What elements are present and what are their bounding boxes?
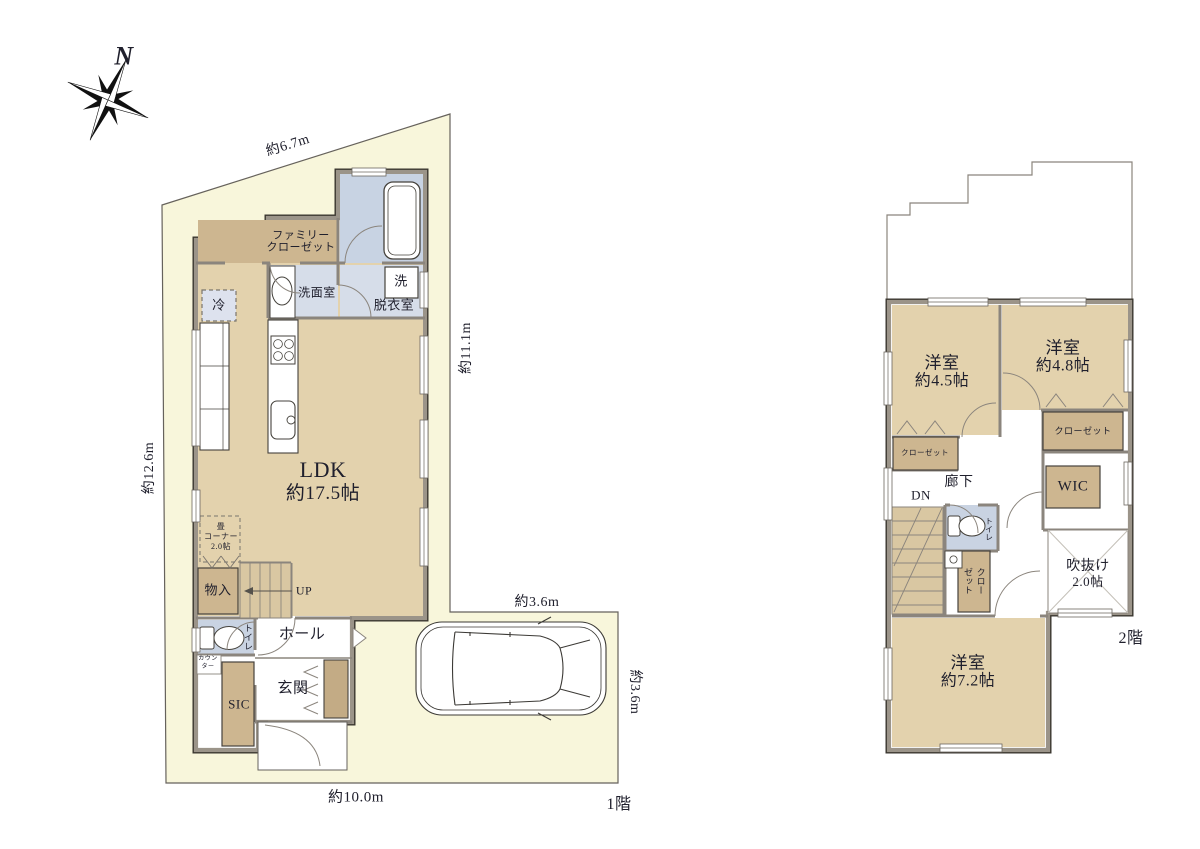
room-label-72: 洋室 約7.2帖 (941, 654, 996, 691)
hallway-label: 廊下 (945, 475, 974, 491)
dim-bottom: 約10.0m (328, 790, 384, 807)
dim-parking-top: 約3.6m (515, 595, 560, 611)
reference-outline-2f (887, 162, 1132, 302)
room-label-entrance: 玄関 (277, 681, 308, 698)
floor2-label: 2階 (1118, 630, 1143, 648)
closet45-label: クローゼット (901, 449, 949, 457)
bathtub-icon (384, 182, 420, 259)
compass-icon (50, 42, 166, 158)
void-label: 吹抜け 2.0帖 (1066, 559, 1110, 589)
kitchen-counter-icon (268, 320, 298, 453)
dim-parking-right: 約3.6m (626, 670, 642, 715)
dim-left: 約12.6m (142, 442, 158, 494)
toilet1-icon (200, 627, 244, 650)
cupboard-icon (200, 323, 229, 450)
stairs-2f-icon (892, 507, 943, 614)
room-label-family-closet: ファミリー クローゼット (267, 230, 336, 255)
room-label-toilet1: トイレ (243, 624, 253, 651)
dim-right: 約11.1m (459, 322, 475, 374)
room-label-45: 洋室 約4.5帖 (915, 354, 970, 391)
ldk-area: 約17.5帖 (286, 483, 360, 504)
room-label-sic: SIC (228, 698, 250, 713)
washer-label: 洗 (394, 275, 408, 290)
fridge-label: 冷 (212, 299, 226, 314)
handwash-box (945, 551, 962, 568)
toilet2-icon (948, 516, 985, 536)
room-label-tatami: 畳 コーナー 2.0帖 (204, 522, 238, 552)
stairs-1f-icon (240, 563, 292, 618)
closet48-label: クローゼット (1054, 426, 1111, 436)
floor1-label: 1階 (606, 796, 631, 814)
room-label-hall: ホール (279, 627, 326, 644)
wic-label: WIC (1058, 479, 1089, 496)
counter-label: カウン ター (198, 656, 218, 672)
ldk-name: LDK (286, 458, 360, 483)
car-icon (416, 617, 606, 720)
room-label-ldk: LDK 約17.5帖 (286, 458, 360, 504)
stairs-dn-label: DN (911, 489, 931, 504)
compass-n-label: N (114, 41, 133, 70)
room-label-washroom: 洗面室 (298, 286, 336, 299)
room-label-48: 洋室 約4.8帖 (1036, 339, 1091, 376)
entrance-porch (258, 722, 347, 770)
room-label-dressing: 脱衣室 (374, 299, 415, 314)
floor-plan-page: N 約6.7m 約12.6m 約11.1m 約3.6m 約3.6m 約10.0m… (0, 0, 1200, 849)
room-label-storage: 物入 (204, 584, 231, 599)
floor-plan-drawing (0, 0, 1200, 849)
room-label-toilet2: トイレ (984, 517, 993, 541)
entrance-cabinet (324, 660, 348, 718)
closet-hall-label: クロー ゼット (961, 568, 986, 595)
stairs-up-label: UP (296, 584, 312, 597)
